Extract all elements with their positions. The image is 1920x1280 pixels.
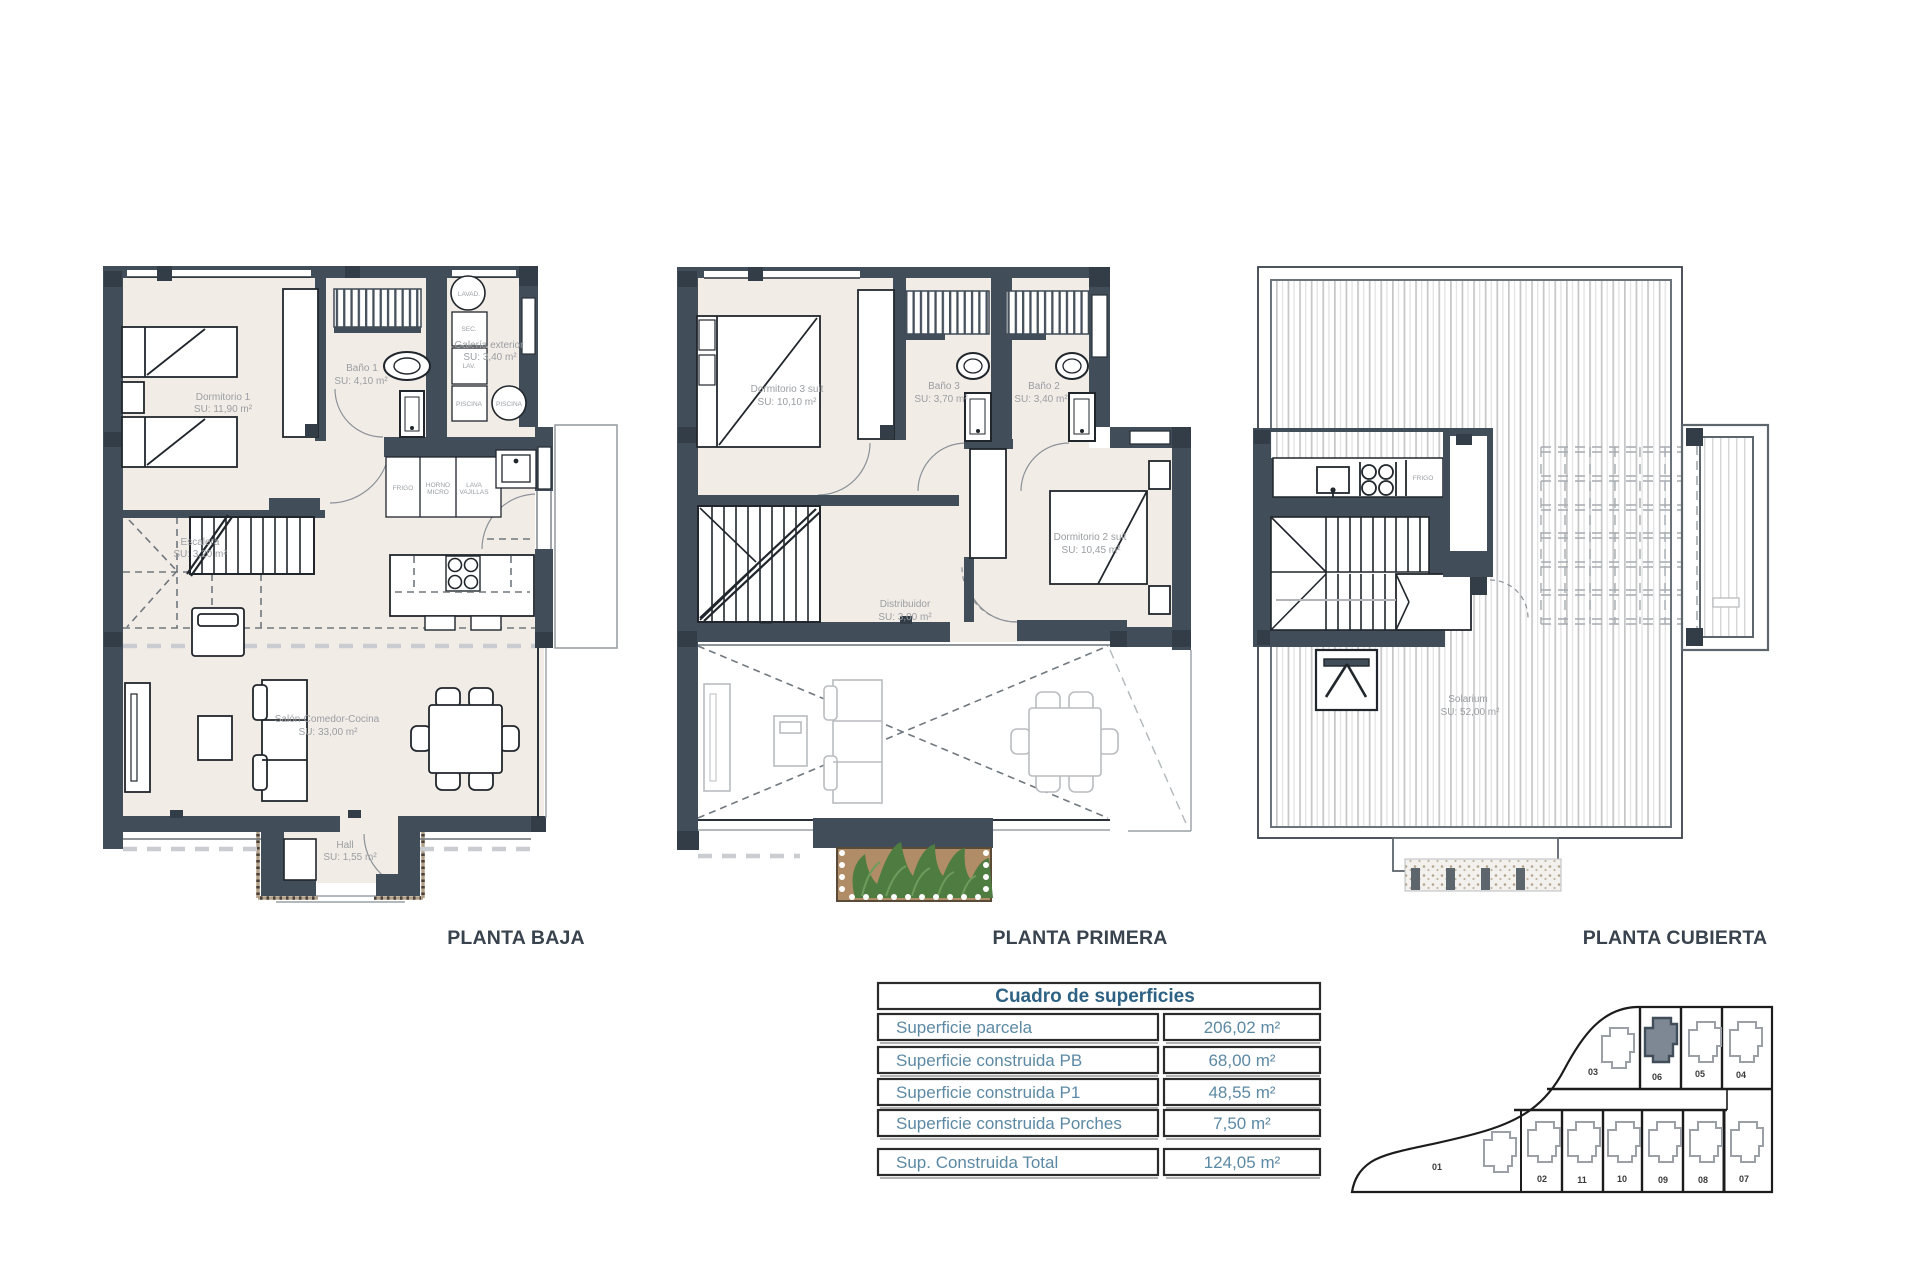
svg-text:05: 05 [1695, 1069, 1705, 1079]
svg-text:Solarium: Solarium [1448, 694, 1487, 705]
svg-text:SU: 3,70 m²: SU: 3,70 m² [914, 394, 968, 405]
svg-text:02: 02 [1537, 1174, 1547, 1184]
svg-text:LAVA: LAVA [466, 482, 482, 489]
svg-text:03: 03 [1588, 1067, 1598, 1077]
svg-text:01: 01 [1432, 1162, 1442, 1172]
svg-text:PISCINA: PISCINA [456, 401, 483, 408]
svg-text:PISCINA: PISCINA [496, 401, 523, 408]
svg-text:PLANTA BAJA: PLANTA BAJA [447, 927, 585, 949]
svg-text:Baño 3: Baño 3 [928, 381, 960, 392]
svg-text:07: 07 [1739, 1174, 1749, 1184]
svg-text:Distribuidor: Distribuidor [880, 599, 931, 610]
svg-text:04: 04 [1736, 1070, 1746, 1080]
svg-text:Escalera: Escalera [181, 537, 220, 548]
svg-text:LAVAD.: LAVAD. [458, 291, 480, 298]
svg-text:Hall: Hall [336, 840, 353, 851]
svg-text:Dormitorio 3 suit: Dormitorio 3 suit [751, 384, 824, 395]
svg-text:HORNO: HORNO [426, 482, 450, 489]
svg-text:Superficie construida PB: Superficie construida PB [896, 1051, 1082, 1070]
svg-text:206,02 m²: 206,02 m² [1204, 1018, 1281, 1037]
svg-text:Sup. Construida Total: Sup. Construida Total [896, 1153, 1058, 1172]
svg-text:48,55 m²: 48,55 m² [1208, 1083, 1275, 1102]
svg-text:08: 08 [1698, 1175, 1708, 1185]
svg-text:Dormitorio 2 suit: Dormitorio 2 suit [1054, 532, 1127, 543]
svg-text:SU: 3,00 m²: SU: 3,00 m² [878, 612, 932, 623]
svg-text:SU: 10,10 m²: SU: 10,10 m² [758, 397, 818, 408]
svg-text:SU: 11,90 m²: SU: 11,90 m² [194, 404, 253, 415]
svg-text:Dormitorio 1: Dormitorio 1 [196, 392, 251, 403]
svg-text:06: 06 [1652, 1072, 1662, 1082]
svg-text:LAV.: LAV. [462, 363, 475, 370]
svg-text:Cuadro de superficies: Cuadro de superficies [995, 986, 1195, 1007]
svg-text:SU: 1,55 m²: SU: 1,55 m² [323, 852, 377, 863]
svg-text:SU: 33,00 m²: SU: 33,00 m² [299, 727, 359, 738]
svg-text:PLANTA PRIMERA: PLANTA PRIMERA [992, 927, 1167, 949]
svg-text:10: 10 [1617, 1174, 1627, 1184]
svg-text:09: 09 [1658, 1175, 1668, 1185]
svg-text:PLANTA CUBIERTA: PLANTA CUBIERTA [1583, 927, 1768, 949]
svg-text:SU: 3,40 m²: SU: 3,40 m² [1014, 394, 1068, 405]
svg-text:SU: 52,00 m²: SU: 52,00 m² [1441, 707, 1501, 718]
svg-text:SU: 3,40 m²: SU: 3,40 m² [463, 352, 517, 363]
svg-text:Baño 2: Baño 2 [1028, 381, 1060, 392]
svg-text:7,50 m²: 7,50 m² [1213, 1114, 1271, 1133]
svg-text:Galería exterior: Galería exterior [455, 340, 525, 351]
svg-text:FRIGO: FRIGO [393, 485, 414, 492]
svg-text:SU: 4,10 m²: SU: 4,10 m² [334, 376, 388, 387]
svg-text:68,00 m²: 68,00 m² [1208, 1051, 1275, 1070]
svg-text:124,05 m²: 124,05 m² [1204, 1153, 1281, 1172]
svg-text:Superficie parcela: Superficie parcela [896, 1018, 1033, 1037]
svg-text:Salón-Comedor-Cocina: Salón-Comedor-Cocina [275, 714, 380, 725]
svg-text:SU: 3,20 m²: SU: 3,20 m² [173, 549, 227, 560]
svg-text:SU: 10,45 m²: SU: 10,45 m² [1062, 545, 1122, 556]
svg-text:Superficie construida P1: Superficie construida P1 [896, 1083, 1080, 1102]
svg-text:MICRO: MICRO [427, 489, 449, 496]
svg-text:Baño 1: Baño 1 [346, 363, 378, 374]
svg-text:FRIGO: FRIGO [1413, 475, 1434, 482]
svg-text:VAJILLAS: VAJILLAS [459, 489, 489, 496]
svg-text:Superficie construida Porches: Superficie construida Porches [896, 1114, 1122, 1133]
svg-text:SEC.: SEC. [461, 326, 476, 333]
svg-text:11: 11 [1577, 1175, 1587, 1185]
